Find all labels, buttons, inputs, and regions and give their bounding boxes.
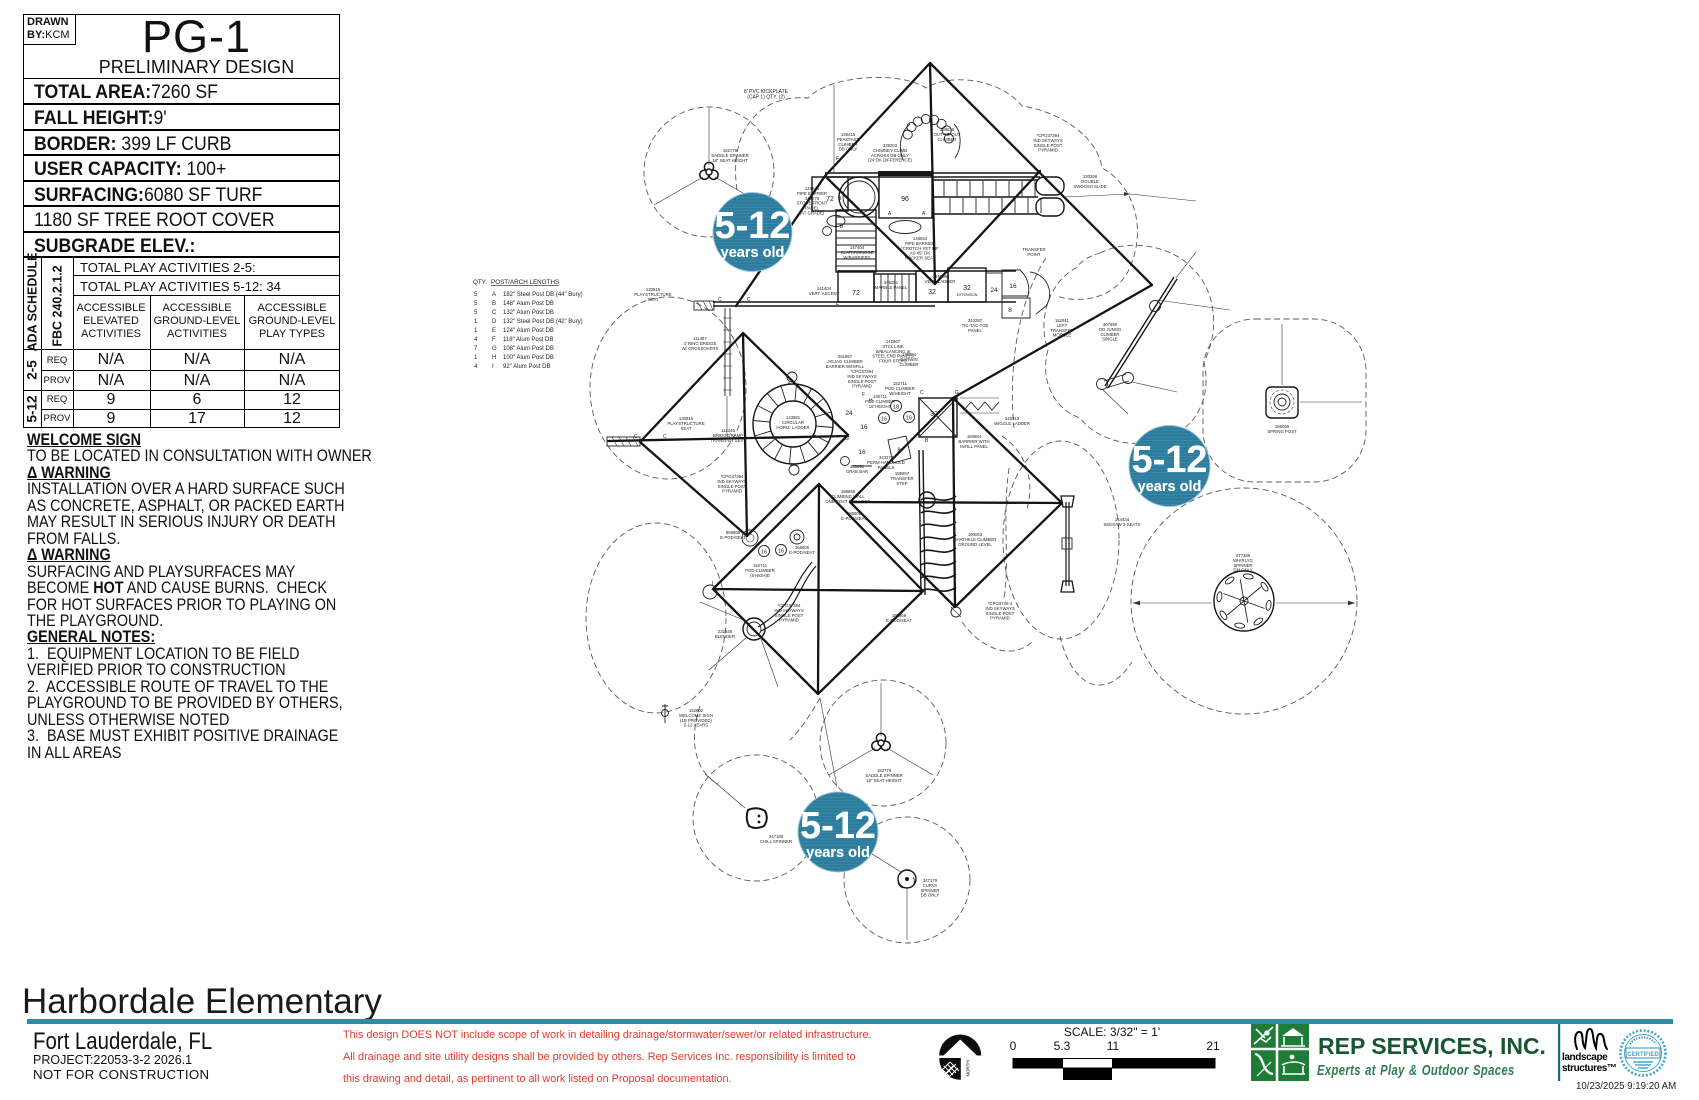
svg-text:118" Alum Post DB: 118" Alum Post DB [503,337,553,343]
svg-text:16: 16 [881,417,887,423]
svg-text:130268DOUBLESWOOSH SLIDE: 130268DOUBLESWOOSH SLIDE [1073,174,1106,189]
svg-text:139415PEAKFASTCLIMBERDB ONLY: 139415PEAKFASTCLIMBERDB ONLY [837,132,860,152]
svg-text:24: 24 [845,410,853,417]
svg-text:111345BRIDGE/RAMPTRANSFER SEAT: 111345BRIDGE/RAMPTRANSFER SEAT [710,428,746,443]
svg-text:347179CURVASPINNERDB ONLY: 347179CURVASPINNERDB ONLY [920,878,939,898]
svg-text:132" Steel Post DB (42" Bury): 132" Steel Post DB (42" Bury) [503,319,583,325]
svg-text:*CPO37394IND SKYWAYSSINGLE POS: *CPO37394IND SKYWAYSSINGLE POSTPYRAMID [1033,133,1063,153]
svg-text:1114873' RING BRIDGEW/ CROSSOV: 1114873' RING BRIDGEW/ CROSSOVERS [682,336,719,351]
svg-text:190063BHATHKLE CLIMBERGROUND L: 190063BHATHKLE CLIMBERGROUND LEVEL [954,532,997,547]
svg-text:188858CLIMBING WALLONE POST IN: 188858CLIMBING WALLONE POST INCLUDED [825,489,870,504]
svg-text:307890OD JUNGDCLIMBERSINGLE: 307890OD JUNGDCLIMBERSINGLE [1099,322,1121,342]
svg-text:F: F [862,392,865,398]
svg-text:*CPO37394IND SKYWAYSSINGLE POS: *CPO37394IND SKYWAYSSINGLE POSTPYRAMID [717,474,747,494]
svg-text:32: 32 [930,411,938,418]
svg-text:H: H [869,398,873,404]
svg-text:345281MARBLE PANEL: 345281MARBLE PANEL [875,280,908,290]
svg-text:I: I [492,364,494,370]
svg-text:5.3: 5.3 [1054,1039,1071,1053]
svg-text:4: 4 [474,364,478,370]
svg-text:I: I [951,607,952,613]
svg-text:SCALE: 3/32" = 1': SCALE: 3/32" = 1' [1064,1025,1160,1039]
svg-text:152911LEFTTRANSFERMODULE: 152911LEFTTRANSFERMODULE [1050,318,1073,338]
svg-text:CERTIFIED: CERTIFIED [1627,1052,1659,1058]
svg-text:277389WHIRLYGSPINNERDM ONLY: 277389WHIRLYGSPINNERDM ONLY [1233,553,1253,573]
svg-text:147404CLATERBRIDGEW/BARRIERS: 147404CLATERBRIDGEW/BARRIERS [840,245,873,260]
svg-text:100" Alum Post DB: 100" Alum Post DB [503,355,554,361]
svg-text:TRANSFERPOINT: TRANSFERPOINT [1022,247,1045,257]
svg-text:A: A [888,211,892,217]
svg-text:5: 5 [474,301,478,307]
svg-text:8' PVC KICKPLATE(CAP 1) QTY. (: 8' PVC KICKPLATE(CAP 1) QTY. (2) [744,89,789,101]
svg-text:1: 1 [474,328,478,334]
svg-text:16: 16 [778,549,784,555]
svg-text:D: D [492,319,497,325]
svg-text:5: 5 [474,310,478,316]
svg-text:92" Alum Post DB: 92" Alum Post DB [503,364,550,370]
svg-text:*CPO3726-4IND SKYWAYSSINGLE PO: *CPO3726-4IND SKYWAYSSINGLE POSTPYRAMID [985,601,1015,621]
svg-text:5-12: 5-12 [800,805,876,847]
svg-text:C: C [718,297,722,303]
svg-text:0: 0 [1010,1039,1017,1053]
svg-text:1: 1 [474,355,478,361]
svg-text:96: 96 [901,196,909,203]
svg-text:18: 18 [893,405,899,411]
svg-text:343273PERM HANDHOLDPANELS: 343273PERM HANDHOLDPANELS [867,455,905,470]
svg-text:7: 7 [474,346,478,352]
svg-text:183884BARRIER WITHINFILL PANEL: 183884BARRIER WITHINFILL PANEL [958,434,989,449]
svg-text:C: C [920,390,924,396]
svg-text:F: F [492,337,496,343]
svg-text:72: 72 [852,290,860,297]
svg-text:135891GRAB BAR: 135891GRAB BAR [846,464,868,474]
svg-text:B: B [492,301,496,307]
svg-text:32: 32 [928,289,936,296]
svg-text:132" Alum Post DB: 132" Alum Post DB [503,310,554,316]
svg-text:16: 16 [1009,283,1017,290]
svg-text:178894DARWINCLIMBER: 178894DARWINCLIMBER [899,352,918,367]
svg-text:231646BLENDER: 231646BLENDER [715,629,735,639]
svg-text:130815PLAYSTRUCTURESEAT: 130815PLAYSTRUCTURESEAT [634,287,671,302]
svg-text:152711POD CLIMBERW/HEIGHT: 152711POD CLIMBERW/HEIGHT [885,381,915,396]
svg-text:16: 16 [761,550,767,556]
svg-text:11: 11 [1107,1039,1120,1053]
svg-text:148" Alum Post DB: 148" Alum Post DB [503,301,554,307]
svg-text:QTY.: QTY. [473,279,487,286]
svg-text:B: B [840,224,844,230]
svg-text:C: C [492,310,497,316]
svg-text:182" Steel Post DB (44" Bury): 182" Steel Post DB (44" Bury) [503,292,583,298]
svg-text:E: E [836,302,840,308]
svg-text:251857JIGJAG CLIMBERBARRIER W/: 251857JIGJAG CLIMBERBARRIER W/INFILL [826,354,865,369]
svg-text:188869E-POD/SEAT: 188869E-POD/SEAT [886,613,912,623]
svg-text:21: 21 [1206,1039,1220,1053]
svg-text:C: C [634,434,638,440]
svg-text:B: B [838,196,842,202]
svg-text:16: 16 [860,424,868,431]
svg-text:32: 32 [963,285,971,292]
svg-text:185857TRANSFERSTEP: 185857TRANSFERSTEP [890,471,913,486]
svg-text:C: C [663,434,667,440]
svg-text:152902WELCOME SIGN(1B PROVIDED: 152902WELCOME SIGN(1B PROVIDED)5-12 YEAR… [679,708,713,728]
svg-text:186069SPRING POST: 186069SPRING POST [1267,424,1297,434]
svg-text:A: A [922,211,926,217]
svg-text:years old: years old [806,845,870,861]
svg-text:143891CIRCULARHORIZ. LADDER: 143891CIRCULARHORIZ. LADDER [776,415,809,430]
svg-text:108" Alum Post DB: 108" Alum Post DB [503,346,554,352]
svg-text:245609VERT. LADDER: 245609VERT. LADDER [925,274,956,284]
svg-text:G: G [492,346,497,352]
svg-text:years old: years old [721,245,785,261]
svg-text:POST/ARCH LENGTHS: POST/ARCH LENGTHS [491,279,559,286]
svg-text:B: B [925,438,929,444]
svg-text:16: 16 [906,416,912,422]
svg-text:5-12: 5-12 [1131,439,1207,481]
svg-text:130815PLAYSTRUCTURESEAT: 130815PLAYSTRUCTURESEAT [667,416,704,431]
svg-text:343287TIC-TAC-TOEPANEL: 343287TIC-TAC-TOEPANEL [962,318,989,333]
svg-text:24: 24 [990,287,998,294]
svg-text:A: A [492,292,496,298]
svg-text:E: E [492,328,496,334]
svg-text:5-12: 5-12 [714,205,790,247]
svg-text:G: G [845,436,849,442]
svg-text:C: C [747,297,751,303]
svg-text:347189CHILL SPINNER: 347189CHILL SPINNER [760,834,792,844]
svg-text:I: I [712,581,713,587]
svg-text:EXTENSION: EXTENSION [957,293,978,297]
svg-text:4: 4 [474,337,478,343]
svg-text:182779SADDLE SPINNER18" SEAT H: 182779SADDLE SPINNER18" SEAT HEIGHT [865,768,903,783]
svg-text:185809E-POD/SEAT: 185809E-POD/SEAT [841,511,867,521]
svg-text:F: F [836,156,839,162]
svg-text:8: 8 [1008,307,1012,314]
svg-text:years old: years old [1138,479,1202,495]
svg-text:148544PIPE BARRIER343270STORE: 148544PIPE BARRIER343270STORE FRONTPANEL… [797,186,828,216]
svg-text:152711POD CLIMBER(6'HIGH)E: 152711POD CLIMBER(6'HIGH)E [745,563,775,578]
svg-text:*CPO37394IND SKYWAYSSINGLE POS: *CPO37394IND SKYWAYSSINGLE POSTPYRAMID [847,369,877,389]
svg-text:1: 1 [474,319,478,325]
svg-text:H: H [492,355,496,361]
svg-text:165806E-POD/SEAT: 165806E-POD/SEAT [789,545,815,555]
svg-text:124" Alum Post DB: 124" Alum Post DB [503,328,554,334]
svg-text:141404VERT. ASCENT: 141404VERT. ASCENT [809,286,840,296]
svg-text:NORTH: NORTH [966,1060,971,1076]
svg-text:152779SADDLE SPINNER18" SEAT H: 152779SADDLE SPINNER18" SEAT HEIGHT [711,148,749,163]
svg-text:5: 5 [474,292,478,298]
svg-text:339636OUT-TO-OUTCLIMBER: 339636OUT-TO-OUTCLIMBER [934,127,961,142]
svg-text:16: 16 [858,449,866,456]
svg-text:*CPO37394IND SKYWAYSSINGLE POS: *CPO37394IND SKYWAYSSINGLE POSTPYRAMID [774,603,804,623]
svg-text:144434SEESAW 2-SEATS: 144434SEESAW 2-SEATS [1103,517,1140,527]
svg-text:345313WIGGLE LADDER: 345313WIGGLE LADDER [994,416,1030,426]
svg-text:339203CHIMNEY CLIMBACROSS DB O: 339203CHIMNEY CLIMBACROSS DB ONLY(24"DK … [868,143,912,163]
svg-text:G: G [955,390,959,396]
